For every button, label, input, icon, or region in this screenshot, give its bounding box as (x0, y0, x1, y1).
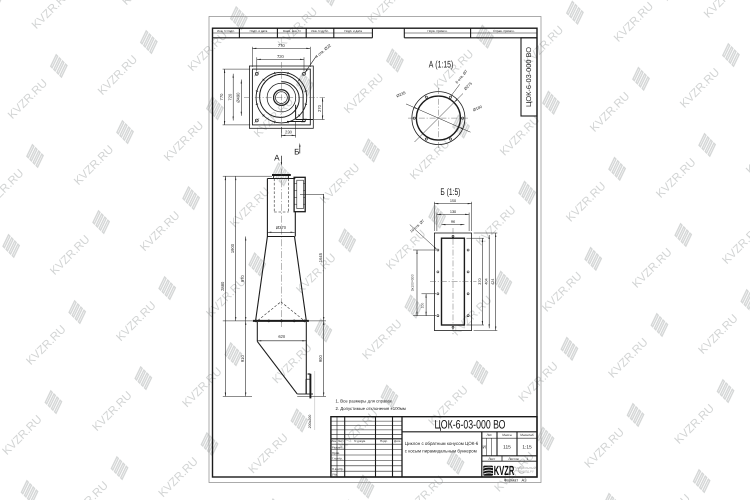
svg-text:Инв. N дубл.: Инв. N дубл. (311, 29, 329, 33)
svg-text:130: 130 (450, 210, 456, 214)
svg-text:Ø370: Ø370 (276, 225, 287, 230)
svg-text:720: 720 (277, 54, 285, 59)
svg-text:3х100=300: 3х100=300 (411, 274, 415, 291)
svg-text:424: 424 (491, 279, 495, 285)
svg-text:404: 404 (485, 278, 489, 284)
svg-text:Справ. примен.: Справ. примен. (493, 29, 515, 33)
svg-text:2880: 2880 (220, 281, 225, 291)
svg-text:115: 115 (503, 445, 511, 451)
svg-text:720: 720 (228, 93, 233, 101)
svg-text:2. Допустимые отклонения ±10: 2. Допустимые отклонения ±100мм (336, 406, 406, 411)
svg-text:Дата: Дата (394, 439, 401, 443)
svg-text:Формат: Формат (504, 477, 518, 482)
svg-text:Циклон с обратным конусом ЦОК-: Циклон с обратным конусом ЦОК-6 (405, 441, 479, 446)
svg-text:Б: Б (294, 147, 299, 156)
svg-text:А3: А3 (522, 477, 528, 482)
svg-text:Пров.: Пров. (332, 451, 340, 455)
svg-text:Подп.: Подп. (380, 439, 388, 443)
svg-text:1645: 1645 (318, 252, 323, 262)
svg-text:с косым пирамидальным бункеро: с косым пирамидальным бункером (405, 448, 477, 453)
svg-text:Б (1:5): Б (1:5) (440, 187, 460, 198)
svg-text:1: 1 (527, 457, 529, 461)
svg-text:Изм.: Изм. (331, 440, 337, 443)
svg-text:Н.контр.: Н.контр. (332, 467, 344, 471)
svg-text:96: 96 (451, 220, 455, 224)
svg-text:Взам. инв. N: Взам. инв. N (283, 29, 301, 33)
svg-text:270: 270 (317, 104, 322, 112)
svg-text:Утв.: Утв. (332, 473, 338, 477)
svg-text:Инв. N подл.: Инв. N подл. (217, 29, 235, 33)
svg-text:100: 100 (420, 303, 424, 309)
svg-text:770: 770 (278, 43, 286, 48)
svg-text:И: И (483, 445, 486, 450)
svg-text:А: А (274, 153, 280, 162)
svg-text:ЦОК-6-03-000 ВО: ЦОК-6-03-000 ВО (526, 46, 533, 107)
svg-text:1. Все размеры для справок: 1. Все размеры для справок (336, 399, 393, 404)
svg-text:Подп. и дата: Подп. и дата (250, 29, 268, 33)
svg-text:Разраб.: Разраб. (332, 446, 343, 450)
svg-text:370: 370 (478, 278, 482, 284)
svg-text:1:15: 1:15 (522, 445, 532, 451)
svg-text:Лист: Лист (488, 457, 495, 461)
svg-text:Масштаб: Масштаб (520, 433, 533, 437)
svg-text:ЦОК-6-03-000 ВО: ЦОК-6-03-000 ВО (435, 418, 506, 432)
svg-text:Масса: Масса (502, 433, 511, 437)
svg-text:Лист: Лист (338, 440, 345, 443)
svg-text:Подп. и дата: Подп. и дата (344, 29, 362, 33)
svg-text:Т.контр.: Т.контр. (332, 456, 343, 460)
svg-text:200х200: 200х200 (308, 415, 312, 429)
svg-text:1900: 1900 (230, 243, 235, 253)
svg-text:150: 150 (450, 199, 456, 203)
svg-text:Ø490: Ø490 (236, 92, 241, 103)
svg-text:900: 900 (318, 355, 323, 363)
svg-text:910: 910 (240, 355, 245, 363)
svg-text:230: 230 (285, 130, 293, 135)
svg-text:970: 970 (240, 275, 245, 283)
svg-text:620: 620 (278, 334, 286, 339)
svg-text:KVZR: KVZR (494, 463, 515, 478)
svg-text:N докум.: N докум. (354, 439, 366, 443)
svg-text:770: 770 (219, 93, 224, 101)
svg-text:ЗАВОД.РУ: ЗАВОД.РУ (519, 470, 534, 474)
svg-text:Лит.: Лит. (487, 433, 493, 437)
svg-text:А (1:15): А (1:15) (429, 59, 454, 70)
svg-text:Перв. примен.: Перв. примен. (428, 29, 448, 33)
svg-text:Листов: Листов (508, 457, 519, 461)
